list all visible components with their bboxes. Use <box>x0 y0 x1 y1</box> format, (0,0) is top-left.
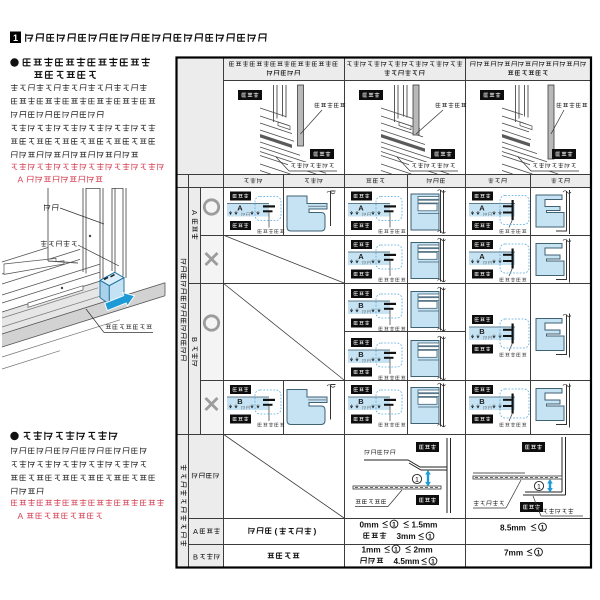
svg-text:A: A <box>18 511 24 521</box>
svg-text:A: A <box>193 527 198 536</box>
svg-text:3mm: 3mm <box>397 532 416 541</box>
svg-text:B: B <box>190 337 199 342</box>
svg-text:1: 1 <box>541 525 545 532</box>
svg-text:1: 1 <box>431 559 435 566</box>
svg-text:A: A <box>237 204 243 213</box>
svg-text:1.5mm: 1.5mm <box>412 521 438 530</box>
svg-text:1: 1 <box>428 534 432 541</box>
svg-text:A: A <box>18 175 24 185</box>
svg-text:): ) <box>314 526 317 536</box>
svg-text:7mm: 7mm <box>504 549 523 558</box>
svg-text:1: 1 <box>537 550 541 557</box>
svg-text:1: 1 <box>537 484 541 491</box>
svg-text:A: A <box>479 204 485 213</box>
svg-text:B: B <box>358 350 364 359</box>
svg-text:A: A <box>358 204 364 213</box>
svg-text:1: 1 <box>415 477 419 484</box>
svg-text:2mm: 2mm <box>414 546 433 555</box>
svg-text:B: B <box>479 327 485 336</box>
svg-text:A: A <box>358 252 364 261</box>
svg-text:B: B <box>479 397 485 406</box>
svg-text:B: B <box>358 301 364 310</box>
svg-text:B: B <box>193 553 198 562</box>
svg-text:1: 1 <box>392 522 396 529</box>
svg-text:0mm: 0mm <box>360 521 379 530</box>
svg-text:A: A <box>479 252 485 261</box>
svg-text:1: 1 <box>394 547 398 554</box>
svg-text:4.5mm: 4.5mm <box>394 557 420 566</box>
svg-text:B: B <box>358 397 364 406</box>
svg-text:1mm: 1mm <box>362 546 381 555</box>
svg-text:(: ( <box>275 526 278 536</box>
svg-text:8.5mm: 8.5mm <box>500 524 526 533</box>
svg-text:1: 1 <box>13 33 18 43</box>
svg-text:B: B <box>237 397 243 406</box>
svg-text:A: A <box>190 210 199 215</box>
